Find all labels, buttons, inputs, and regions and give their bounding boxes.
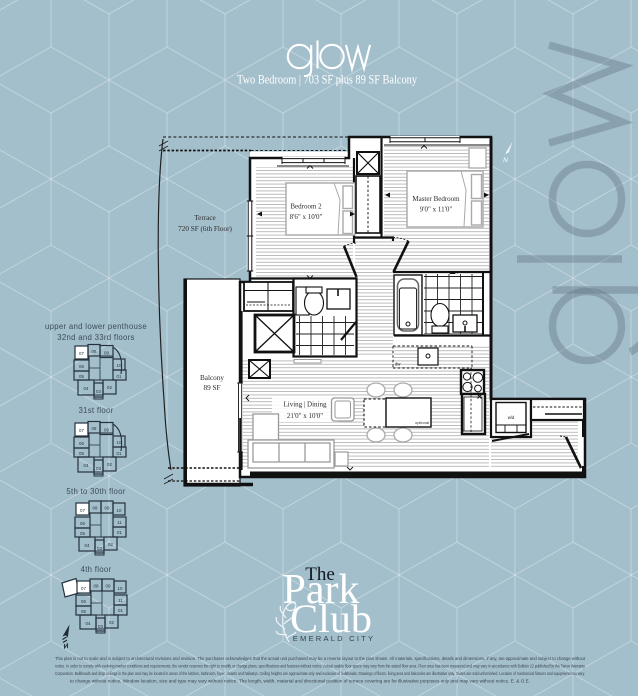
svg-text:EMERALD CITY: EMERALD CITY bbox=[293, 634, 376, 643]
svg-text:8'6" x 10'0": 8'6" x 10'0" bbox=[290, 213, 323, 221]
svg-text:32nd and 33rd floors: 32nd and 33rd floors bbox=[57, 333, 135, 342]
svg-text:Living | Dining: Living | Dining bbox=[283, 401, 327, 409]
svg-text:w/d: w/d bbox=[508, 415, 515, 420]
svg-text:Two Bedroom | 703 SF plus 89 S: Two Bedroom | 703 SF plus 89 SF Balcony bbox=[237, 73, 418, 87]
svg-text:21'0" x 10'0": 21'0" x 10'0" bbox=[287, 412, 323, 420]
svg-text:Master Bedroom: Master Bedroom bbox=[412, 195, 460, 203]
svg-text:upper and lower penthouse: upper and lower penthouse bbox=[45, 322, 147, 331]
svg-text:to change without notice. Wind: to change without notice. Window locatio… bbox=[70, 679, 530, 684]
svg-text:Corporation. Bulkheads and dro: Corporation. Bulkheads and drop ceilings… bbox=[55, 671, 585, 676]
svg-text:89 SF: 89 SF bbox=[204, 384, 221, 392]
svg-text:This plan is not to scale and: This plan is not to scale and is subject… bbox=[55, 656, 586, 661]
svg-text:4th floor: 4th floor bbox=[81, 565, 112, 574]
svg-text:720 SF (6th Floor): 720 SF (6th Floor) bbox=[178, 225, 232, 233]
svg-text:31st floor: 31st floor bbox=[78, 406, 113, 415]
svg-text:Bedroom 2: Bedroom 2 bbox=[290, 203, 322, 211]
svg-text:Balcony: Balcony bbox=[200, 374, 224, 382]
svg-text:N: N bbox=[503, 157, 508, 164]
svg-text:notice. In order to comply wit: notice. In order to comply with evolving… bbox=[55, 664, 586, 669]
svg-text:5th to 30th floor: 5th to 30th floor bbox=[66, 487, 125, 496]
svg-text:optional: optional bbox=[415, 420, 429, 425]
svg-text:Terrace: Terrace bbox=[194, 214, 215, 222]
svg-text:9'0" x 11'0": 9'0" x 11'0" bbox=[420, 206, 453, 214]
